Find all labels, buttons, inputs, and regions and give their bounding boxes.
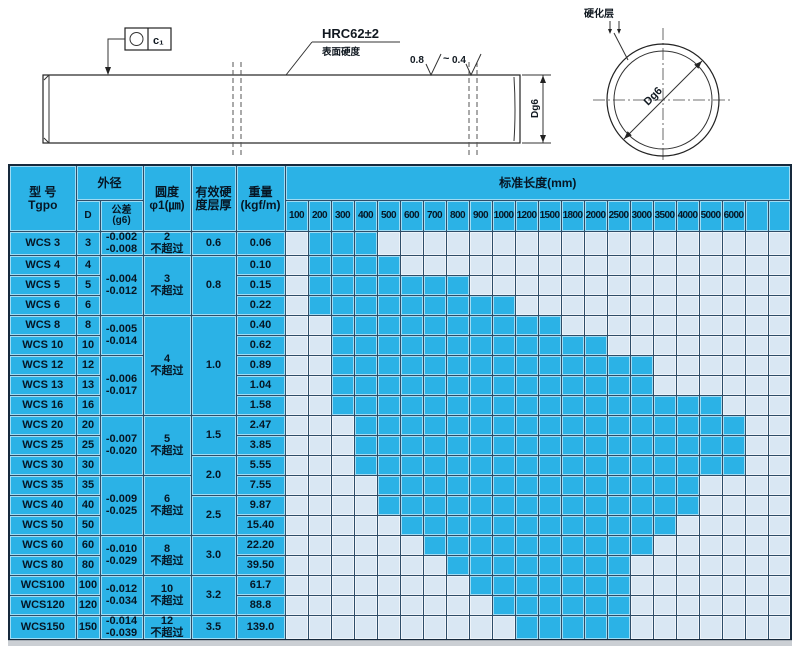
- length-availability-cell: [400, 376, 423, 396]
- length-availability-cell: [400, 316, 423, 336]
- length-availability-cell: [285, 232, 308, 256]
- length-availability-cell: [469, 316, 492, 336]
- tolerance-cell: -0.007 -0.020: [100, 416, 143, 476]
- length-availability-cell: [515, 456, 538, 476]
- length-availability-cell: [653, 376, 676, 396]
- length-availability-cell: [768, 456, 791, 476]
- length-availability-cell: [676, 536, 699, 556]
- length-availability-cell: [699, 596, 722, 616]
- length-availability-cell: [377, 416, 400, 436]
- length-availability-cell: [331, 256, 354, 276]
- roughness-check-icon: [426, 54, 441, 75]
- model-cell: WCS 13: [9, 376, 76, 396]
- length-availability-cell: [745, 396, 768, 416]
- length-availability-cell: [492, 536, 515, 556]
- col-header-length: 600: [400, 201, 423, 232]
- length-availability-cell: [377, 356, 400, 376]
- length-availability-cell: [653, 456, 676, 476]
- length-availability-cell: [538, 536, 561, 556]
- length-availability-cell: [377, 396, 400, 416]
- length-availability-cell: [492, 232, 515, 256]
- tolerance-cell: -0.010 -0.029: [100, 536, 143, 576]
- model-cell: WCS 16: [9, 396, 76, 416]
- length-availability-cell: [768, 556, 791, 576]
- length-availability-cell: [768, 356, 791, 376]
- length-availability-cell: [308, 556, 331, 576]
- length-availability-cell: [354, 256, 377, 276]
- length-availability-cell: [561, 436, 584, 456]
- col-header-length: 500: [377, 201, 400, 232]
- roundness-cell: 8 不超过: [143, 536, 191, 576]
- length-availability-cell: [745, 436, 768, 456]
- length-availability-cell: [584, 256, 607, 276]
- weight-cell: 0.62: [236, 336, 285, 356]
- length-availability-cell: [308, 476, 331, 496]
- tolerance-cell: -0.005 -0.014: [100, 316, 143, 356]
- col-header-length: 700: [423, 201, 446, 232]
- diameter-cell: 60: [76, 536, 100, 556]
- length-availability-cell: [354, 616, 377, 641]
- col-header-length: 1200: [515, 201, 538, 232]
- length-availability-cell: [538, 436, 561, 456]
- length-availability-cell: [768, 516, 791, 536]
- length-availability-cell: [469, 476, 492, 496]
- length-availability-cell: [676, 316, 699, 336]
- length-availability-cell: [722, 436, 745, 456]
- length-availability-cell: [354, 536, 377, 556]
- length-availability-cell: [699, 336, 722, 356]
- length-availability-cell: [561, 316, 584, 336]
- length-availability-cell: [515, 296, 538, 316]
- length-availability-cell: [745, 376, 768, 396]
- length-availability-cell: [584, 376, 607, 396]
- tolerance-frame: c₁: [105, 28, 171, 75]
- length-availability-cell: [354, 232, 377, 256]
- weight-cell: 3.85: [236, 436, 285, 456]
- model-cell: WCS 80: [9, 556, 76, 576]
- scan-shadow: [8, 640, 792, 646]
- length-availability-cell: [584, 516, 607, 536]
- length-availability-cell: [423, 596, 446, 616]
- length-availability-cell: [561, 616, 584, 641]
- col-header-length: [768, 201, 791, 232]
- length-availability-cell: [400, 516, 423, 536]
- length-availability-cell: [768, 496, 791, 516]
- length-availability-cell: [676, 496, 699, 516]
- length-availability-cell: [676, 396, 699, 416]
- length-availability-cell: [515, 232, 538, 256]
- length-availability-cell: [538, 496, 561, 516]
- table-row: WCS 88-0.005 -0.0144 不超过1.00.40: [9, 316, 791, 336]
- length-availability-cell: [331, 396, 354, 416]
- roughness-tilde: ~: [443, 53, 450, 65]
- length-availability-cell: [607, 556, 630, 576]
- length-availability-cell: [331, 576, 354, 596]
- length-availability-cell: [446, 496, 469, 516]
- length-availability-cell: [538, 476, 561, 496]
- length-availability-cell: [561, 256, 584, 276]
- length-availability-cell: [285, 596, 308, 616]
- length-availability-cell: [331, 296, 354, 316]
- length-availability-cell: [584, 356, 607, 376]
- col-header-model: 型 号 Tgpo: [9, 165, 76, 232]
- length-availability-cell: [285, 376, 308, 396]
- length-availability-cell: [308, 576, 331, 596]
- length-availability-cell: [584, 576, 607, 596]
- case-depth-cell: 3.5: [191, 616, 236, 641]
- length-availability-cell: [722, 396, 745, 416]
- diameter-cell: 25: [76, 436, 100, 456]
- length-availability-cell: [423, 456, 446, 476]
- length-availability-cell: [354, 376, 377, 396]
- length-availability-cell: [699, 416, 722, 436]
- length-availability-cell: [722, 556, 745, 576]
- length-availability-cell: [285, 576, 308, 596]
- circularity-icon: [130, 33, 143, 46]
- length-availability-cell: [285, 536, 308, 556]
- length-availability-cell: [768, 476, 791, 496]
- length-availability-cell: [745, 536, 768, 556]
- length-availability-cell: [653, 556, 676, 576]
- length-availability-cell: [607, 496, 630, 516]
- length-availability-cell: [423, 232, 446, 256]
- length-availability-cell: [492, 616, 515, 641]
- length-availability-cell: [515, 496, 538, 516]
- length-availability-cell: [446, 476, 469, 496]
- length-availability-cell: [745, 456, 768, 476]
- length-availability-cell: [331, 496, 354, 516]
- length-availability-cell: [400, 276, 423, 296]
- length-availability-cell: [699, 516, 722, 536]
- length-availability-cell: [630, 396, 653, 416]
- length-availability-cell: [768, 256, 791, 276]
- diameter-cell: 6: [76, 296, 100, 316]
- length-availability-cell: [699, 576, 722, 596]
- length-availability-cell: [400, 396, 423, 416]
- length-availability-cell: [492, 296, 515, 316]
- length-availability-cell: [607, 336, 630, 356]
- length-availability-cell: [331, 316, 354, 336]
- length-availability-cell: [354, 336, 377, 356]
- col-header-length: 300: [331, 201, 354, 232]
- length-availability-cell: [630, 256, 653, 276]
- length-availability-cell: [584, 616, 607, 641]
- weight-cell: 2.47: [236, 416, 285, 436]
- length-availability-cell: [492, 516, 515, 536]
- col-header-length: 2000: [584, 201, 607, 232]
- length-availability-cell: [354, 356, 377, 376]
- length-availability-cell: [423, 356, 446, 376]
- length-availability-cell: [308, 456, 331, 476]
- length-availability-cell: [400, 616, 423, 641]
- length-availability-cell: [630, 356, 653, 376]
- table-row: WCS 33-0.002 -0.0082 不超过0.60.06: [9, 232, 791, 256]
- length-availability-cell: [722, 296, 745, 316]
- length-availability-cell: [630, 576, 653, 596]
- col-header-length: 3500: [653, 201, 676, 232]
- length-availability-cell: [423, 276, 446, 296]
- length-availability-cell: [699, 456, 722, 476]
- length-availability-cell: [768, 336, 791, 356]
- length-availability-cell: [722, 516, 745, 536]
- length-availability-cell: [492, 456, 515, 476]
- roughness-high: 0.8: [410, 55, 424, 66]
- length-availability-cell: [423, 516, 446, 536]
- length-availability-cell: [446, 336, 469, 356]
- length-availability-cell: [492, 416, 515, 436]
- length-availability-cell: [653, 496, 676, 516]
- length-availability-cell: [354, 436, 377, 456]
- length-availability-cell: [469, 556, 492, 576]
- length-availability-cell: [285, 556, 308, 576]
- length-availability-cell: [538, 416, 561, 436]
- length-availability-cell: [538, 516, 561, 536]
- length-availability-cell: [308, 496, 331, 516]
- hardness-callout: HRC62±2 表面硬度: [286, 26, 400, 75]
- weight-cell: 88.8: [236, 596, 285, 616]
- length-availability-cell: [653, 256, 676, 276]
- length-availability-cell: [607, 616, 630, 641]
- col-header-outer-dia: 外径: [76, 165, 143, 201]
- length-availability-cell: [538, 576, 561, 596]
- model-cell: WCS 35: [9, 476, 76, 496]
- col-header-d: D: [76, 201, 100, 232]
- length-availability-cell: [285, 476, 308, 496]
- case-depth-cell: 1.0: [191, 316, 236, 416]
- length-availability-cell: [377, 556, 400, 576]
- length-availability-cell: [354, 556, 377, 576]
- length-availability-cell: [331, 356, 354, 376]
- length-availability-cell: [607, 576, 630, 596]
- length-availability-cell: [561, 596, 584, 616]
- length-availability-cell: [469, 596, 492, 616]
- case-depth-cell: 0.6: [191, 232, 236, 256]
- length-availability-cell: [561, 556, 584, 576]
- length-availability-cell: [561, 476, 584, 496]
- length-availability-cell: [722, 536, 745, 556]
- col-header-length: 400: [354, 201, 377, 232]
- length-availability-cell: [699, 496, 722, 516]
- length-availability-cell: [538, 396, 561, 416]
- length-availability-cell: [308, 436, 331, 456]
- length-availability-cell: [630, 496, 653, 516]
- length-availability-cell: [469, 456, 492, 476]
- length-availability-cell: [653, 336, 676, 356]
- length-availability-cell: [745, 616, 768, 641]
- length-availability-cell: [423, 436, 446, 456]
- length-availability-cell: [699, 376, 722, 396]
- length-availability-cell: [745, 476, 768, 496]
- length-availability-cell: [584, 336, 607, 356]
- model-cell: WCS 3: [9, 232, 76, 256]
- length-availability-cell: [699, 356, 722, 376]
- length-availability-cell: [285, 416, 308, 436]
- diameter-cell: 8: [76, 316, 100, 336]
- length-availability-cell: [768, 376, 791, 396]
- length-availability-cell: [699, 616, 722, 641]
- length-availability-cell: [722, 576, 745, 596]
- col-header-length: 1500: [538, 201, 561, 232]
- length-availability-cell: [561, 376, 584, 396]
- length-availability-cell: [538, 256, 561, 276]
- length-availability-cell: [768, 232, 791, 256]
- case-layer-callout: 硬化层: [584, 7, 628, 60]
- length-availability-cell: [676, 556, 699, 576]
- length-availability-cell: [607, 316, 630, 336]
- length-availability-cell: [469, 576, 492, 596]
- length-availability-cell: [400, 336, 423, 356]
- col-header-std-length: 标准长度(mm): [285, 165, 791, 201]
- roundness-cell: 3 不超过: [143, 256, 191, 316]
- weight-cell: 0.22: [236, 296, 285, 316]
- length-availability-cell: [768, 276, 791, 296]
- weight-cell: 139.0: [236, 616, 285, 641]
- length-availability-cell: [446, 276, 469, 296]
- length-availability-cell: [768, 316, 791, 336]
- length-availability-cell: [469, 256, 492, 276]
- length-availability-cell: [538, 356, 561, 376]
- length-availability-cell: [446, 536, 469, 556]
- length-availability-cell: [285, 496, 308, 516]
- length-availability-cell: [377, 336, 400, 356]
- length-availability-cell: [584, 416, 607, 436]
- length-availability-cell: [469, 616, 492, 641]
- length-availability-cell: [377, 476, 400, 496]
- length-availability-cell: [515, 376, 538, 396]
- diameter-cell: 12: [76, 356, 100, 376]
- table-row: WCS 44-0.004 -0.0123 不超过0.80.10: [9, 256, 791, 276]
- length-availability-cell: [285, 256, 308, 276]
- length-availability-cell: [653, 232, 676, 256]
- length-availability-cell: [492, 556, 515, 576]
- length-availability-cell: [653, 356, 676, 376]
- length-availability-cell: [699, 296, 722, 316]
- model-cell: WCS 30: [9, 456, 76, 476]
- length-availability-cell: [630, 516, 653, 536]
- length-availability-cell: [561, 576, 584, 596]
- length-availability-cell: [653, 296, 676, 316]
- length-availability-cell: [515, 556, 538, 576]
- length-availability-cell: [400, 296, 423, 316]
- length-availability-cell: [446, 616, 469, 641]
- break-lines: [233, 62, 477, 158]
- length-availability-cell: [722, 416, 745, 436]
- weight-cell: 5.55: [236, 456, 285, 476]
- length-availability-cell: [285, 516, 308, 536]
- length-availability-cell: [676, 276, 699, 296]
- length-availability-cell: [377, 576, 400, 596]
- length-availability-cell: [492, 256, 515, 276]
- length-availability-cell: [377, 276, 400, 296]
- length-availability-cell: [285, 296, 308, 316]
- length-availability-cell: [653, 536, 676, 556]
- length-availability-cell: [308, 536, 331, 556]
- length-availability-cell: [653, 396, 676, 416]
- length-availability-cell: [400, 436, 423, 456]
- length-availability-cell: [423, 496, 446, 516]
- length-availability-cell: [377, 256, 400, 276]
- model-cell: WCS120: [9, 596, 76, 616]
- length-availability-cell: [745, 516, 768, 536]
- shaft-diameter-dimension: Dg6: [522, 75, 551, 143]
- length-availability-cell: [377, 596, 400, 616]
- length-availability-cell: [561, 276, 584, 296]
- length-availability-cell: [492, 316, 515, 336]
- length-availability-cell: [699, 396, 722, 416]
- length-availability-cell: [308, 516, 331, 536]
- length-availability-cell: [308, 416, 331, 436]
- length-availability-cell: [469, 296, 492, 316]
- length-availability-cell: [400, 416, 423, 436]
- length-availability-cell: [745, 276, 768, 296]
- length-availability-cell: [492, 476, 515, 496]
- length-availability-cell: [331, 376, 354, 396]
- model-cell: WCS 8: [9, 316, 76, 336]
- col-header-length: 100: [285, 201, 308, 232]
- diameter-cell: 10: [76, 336, 100, 356]
- length-availability-cell: [331, 456, 354, 476]
- roundness-cell: 5 不超过: [143, 416, 191, 476]
- hardness-label: HRC62±2: [322, 26, 379, 41]
- shaft-dim-label: Dg6: [530, 99, 541, 118]
- length-availability-cell: [561, 536, 584, 556]
- length-availability-cell: [331, 516, 354, 536]
- diameter-cell: 35: [76, 476, 100, 496]
- cross-section-view: Dg6: [593, 28, 733, 161]
- weight-cell: 1.58: [236, 396, 285, 416]
- length-availability-cell: [446, 376, 469, 396]
- length-availability-cell: [630, 296, 653, 316]
- case-depth-cell: 3.0: [191, 536, 236, 576]
- length-availability-cell: [768, 536, 791, 556]
- spec-table: 型 号 Tgpo外径圆度 φ1(㎛)有效硬 度层厚重量 (kgf/m)标准长度(…: [8, 164, 792, 641]
- weight-cell: 7.55: [236, 476, 285, 496]
- tolerance-cell: -0.012 -0.034: [100, 576, 143, 616]
- length-availability-cell: [400, 232, 423, 256]
- length-availability-cell: [285, 336, 308, 356]
- length-availability-cell: [584, 496, 607, 516]
- length-availability-cell: [515, 416, 538, 436]
- model-cell: WCS 20: [9, 416, 76, 436]
- table-row: WCS 6060-0.010 -0.0298 不超过3.022.20: [9, 536, 791, 556]
- roundness-cell: 4 不超过: [143, 316, 191, 416]
- length-availability-cell: [492, 496, 515, 516]
- roundness-cell: 6 不超过: [143, 476, 191, 536]
- model-cell: WCS 4: [9, 256, 76, 276]
- length-availability-cell: [308, 396, 331, 416]
- length-availability-cell: [584, 536, 607, 556]
- length-availability-cell: [377, 436, 400, 456]
- length-availability-cell: [400, 456, 423, 476]
- length-availability-cell: [469, 232, 492, 256]
- length-availability-cell: [538, 596, 561, 616]
- length-availability-cell: [377, 536, 400, 556]
- length-availability-cell: [423, 576, 446, 596]
- model-cell: WCS 50: [9, 516, 76, 536]
- length-availability-cell: [745, 296, 768, 316]
- length-availability-cell: [607, 376, 630, 396]
- length-availability-cell: [446, 596, 469, 616]
- length-availability-cell: [699, 316, 722, 336]
- length-availability-cell: [423, 376, 446, 396]
- length-availability-cell: [354, 316, 377, 336]
- surface-roughness-icons: 0.8 ~ 0.4: [410, 53, 481, 75]
- length-availability-cell: [653, 596, 676, 616]
- tolerance-cell: -0.004 -0.012: [100, 256, 143, 316]
- length-availability-cell: [607, 536, 630, 556]
- length-availability-cell: [469, 536, 492, 556]
- length-availability-cell: [722, 496, 745, 516]
